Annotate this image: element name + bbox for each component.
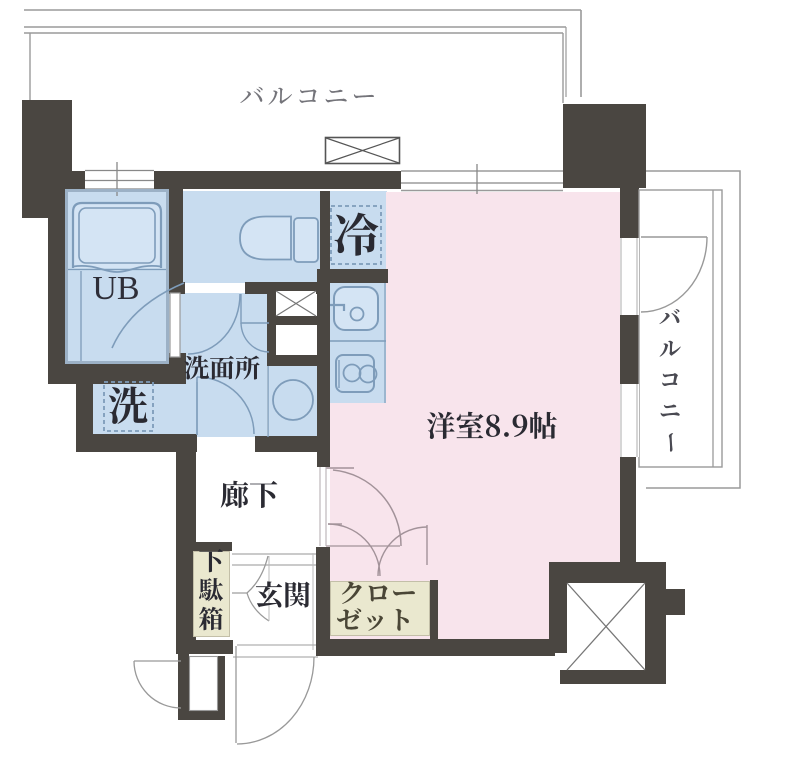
svg-text:UB: UB xyxy=(92,270,139,307)
